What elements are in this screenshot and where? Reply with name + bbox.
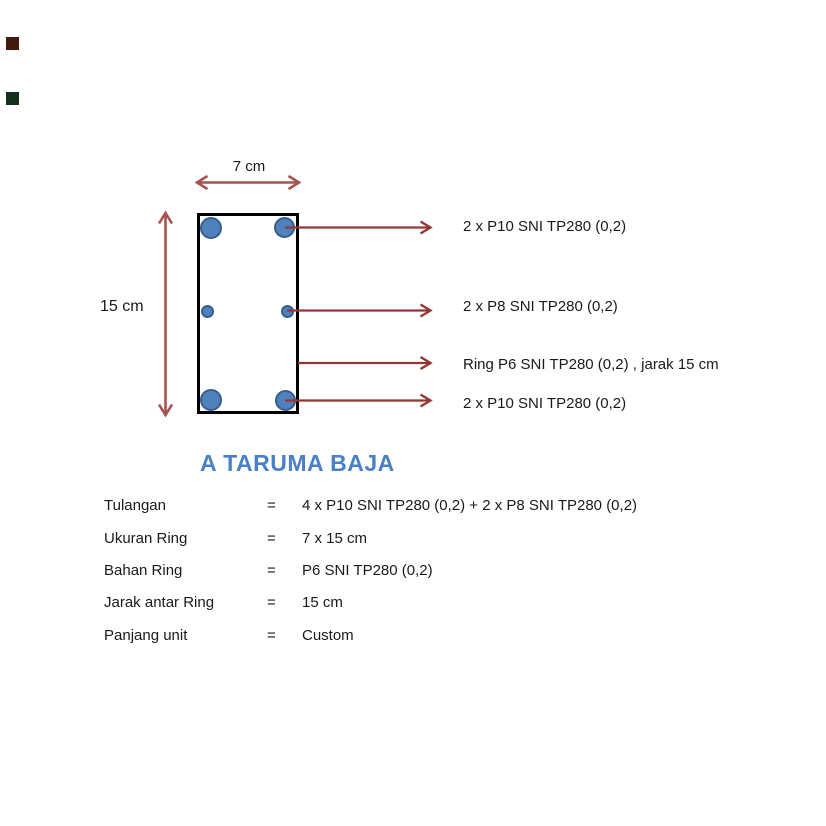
spec-row-jarak-antar-ring: Jarak antar Ring = 15 cm: [0, 594, 826, 611]
callout-label-ring: Ring P6 SNI TP280 (0,2) , jarak 15 cm: [463, 357, 719, 373]
callout-arrow-ring: [298, 357, 431, 369]
spec-label: Panjang unit: [104, 627, 187, 644]
rebar-p10-top-right: [274, 217, 295, 238]
width-dimension-arrow: [197, 176, 299, 189]
corner-mark-top: [6, 37, 19, 50]
equals-sign: =: [267, 594, 276, 611]
callout-arrow-bottom-p10: [285, 395, 431, 407]
spec-label: Ukuran Ring: [104, 530, 187, 547]
width-dimension-label: 7 cm: [225, 158, 273, 175]
height-dimension-label: 15 cm: [100, 298, 146, 315]
rebar-p10-bottom-right: [275, 390, 296, 411]
height-dimension-arrow: [159, 213, 172, 415]
spec-row-panjang-unit: Panjang unit = Custom: [0, 627, 826, 644]
callout-arrow-top-p10: [285, 222, 431, 234]
callout-label-middle-p8: 2 x P8 SNI TP280 (0,2): [463, 299, 618, 315]
spec-label: Tulangan: [104, 497, 166, 514]
rebar-p8-middle-left: [201, 305, 214, 318]
spec-row-ukuran-ring: Ukuran Ring = 7 x 15 cm: [0, 530, 826, 547]
arrows-layer: [0, 0, 826, 826]
page-title: A TARUMA BAJA: [200, 450, 395, 477]
equals-sign: =: [267, 627, 276, 644]
rebar-p10-bottom-left: [200, 389, 222, 411]
rebar-p8-middle-right: [281, 305, 294, 318]
callout-arrow-middle-p8: [287, 305, 431, 317]
spec-label: Jarak antar Ring: [104, 594, 214, 611]
spec-row-bahan-ring: Bahan Ring = P6 SNI TP280 (0,2): [0, 562, 826, 579]
equals-sign: =: [267, 562, 276, 579]
spec-value: 15 cm: [302, 594, 343, 611]
rebar-p10-top-left: [200, 217, 222, 239]
corner-mark-bottom: [6, 92, 19, 105]
callout-label-top-p10: 2 x P10 SNI TP280 (0,2): [463, 219, 626, 235]
spec-label: Bahan Ring: [104, 562, 182, 579]
rebar-spec-page: 7 cm 15 cm: [0, 0, 826, 826]
spec-value: 4 x P10 SNI TP280 (0,2) + 2 x P8 SNI TP2…: [302, 497, 637, 514]
spec-value: Custom: [302, 627, 354, 644]
equals-sign: =: [267, 530, 276, 547]
spec-row-tulangan: Tulangan = 4 x P10 SNI TP280 (0,2) + 2 x…: [0, 497, 826, 514]
equals-sign: =: [267, 497, 276, 514]
callout-label-bottom-p10: 2 x P10 SNI TP280 (0,2): [463, 396, 626, 412]
spec-value: 7 x 15 cm: [302, 530, 367, 547]
spec-value: P6 SNI TP280 (0,2): [302, 562, 433, 579]
